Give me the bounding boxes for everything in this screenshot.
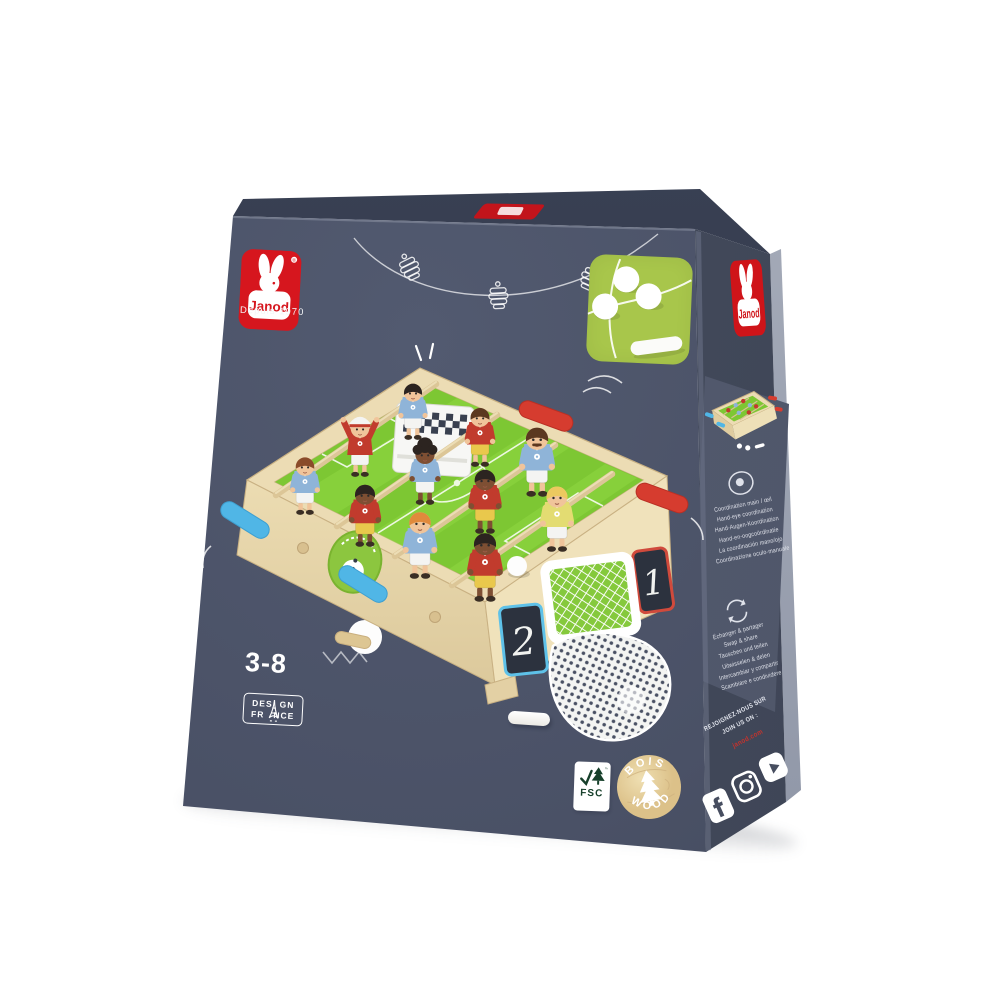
registered-mark: ® (292, 257, 296, 264)
goal (539, 551, 643, 646)
dowel-end (430, 612, 441, 623)
product-photo-janod-foosball-box: Janod ® Depuis 1970 (0, 0, 1000, 1000)
janod-logo-top-face (472, 203, 545, 219)
ball-icon (592, 293, 622, 321)
design-text: GN (279, 699, 294, 711)
hand-eye-icon (724, 466, 759, 501)
goal-net-bag (550, 633, 670, 740)
fsc-tree-icon: ™ (577, 764, 608, 789)
fsc-label: ™ FSC (573, 761, 611, 811)
janod-logo-side: Janod (729, 259, 766, 337)
trademark-mark: ™ (605, 766, 608, 771)
wood-stamp: BOIS WOOD (609, 747, 688, 828)
table-leg (334, 630, 372, 649)
eiffel-tower-icon (268, 699, 279, 725)
lantern-icon (395, 250, 424, 282)
dowel-end (298, 543, 309, 554)
score-left: 2 (508, 618, 538, 664)
side-product-thumbnail (702, 381, 789, 461)
age-range-badge: 3-8 (244, 647, 288, 680)
design-text: FR (251, 709, 265, 721)
janod-logo: Janod ® (238, 248, 302, 331)
brand-tagline: Depuis 1970 (240, 305, 305, 318)
sparkle-decoration (416, 344, 433, 360)
design-france-badge: DESGN FRNCE (242, 692, 304, 726)
rabbit-icon (497, 207, 524, 215)
fsc-acronym: FSC (580, 789, 603, 800)
brand-wordmark: Janod (738, 307, 760, 322)
scoreboard-left: 2 (499, 604, 548, 676)
